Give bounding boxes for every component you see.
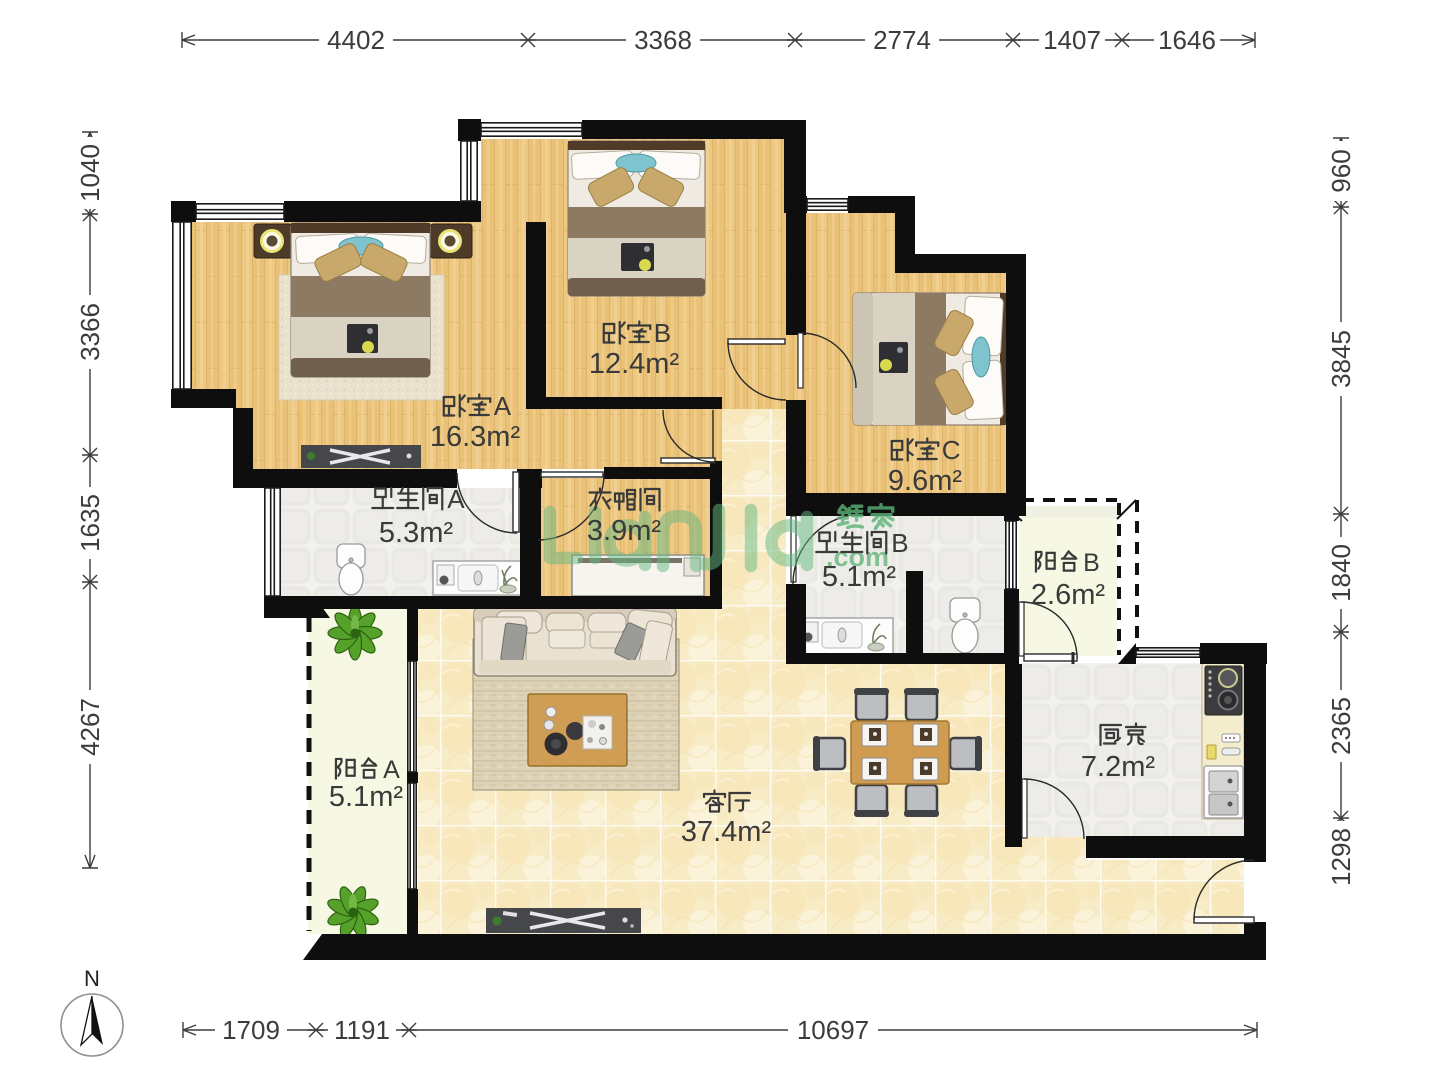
svg-text:5.1m²: 5.1m²: [329, 781, 403, 813]
svg-text:1840: 1840: [1326, 544, 1356, 602]
svg-text:3366: 3366: [75, 303, 105, 361]
svg-text:1298: 1298: [1326, 828, 1356, 886]
svg-text:B: B: [1083, 549, 1100, 577]
svg-text:N: N: [84, 966, 100, 991]
svg-text:A: A: [447, 484, 465, 514]
svg-text:5.3m²: 5.3m²: [379, 517, 453, 549]
svg-text:2774: 2774: [873, 25, 931, 55]
svg-text:A: A: [494, 391, 512, 421]
svg-text:9.6m²: 9.6m²: [888, 465, 962, 497]
svg-text:A: A: [383, 756, 400, 784]
svg-text:12.4m²: 12.4m²: [589, 348, 680, 380]
svg-text:1191: 1191: [334, 1015, 390, 1045]
svg-text:1646: 1646: [1158, 25, 1216, 55]
svg-text:10697: 10697: [797, 1015, 869, 1045]
svg-text:5.1m²: 5.1m²: [822, 561, 896, 593]
svg-text:2365: 2365: [1326, 697, 1356, 755]
svg-text:4402: 4402: [327, 25, 385, 55]
svg-text:1635: 1635: [75, 494, 105, 552]
svg-text:1407: 1407: [1043, 25, 1101, 55]
svg-text:B: B: [654, 318, 671, 348]
svg-text:37.4m²: 37.4m²: [681, 816, 772, 848]
svg-text:B: B: [891, 528, 908, 558]
svg-text:16.3m²: 16.3m²: [430, 421, 521, 453]
svg-text:2.6m²: 2.6m²: [1031, 579, 1105, 611]
svg-text:3.9m²: 3.9m²: [587, 515, 661, 547]
svg-text:4267: 4267: [75, 698, 105, 756]
svg-text:1040: 1040: [75, 144, 105, 202]
svg-text:7.2m²: 7.2m²: [1081, 751, 1155, 783]
svg-text:3368: 3368: [634, 25, 692, 55]
svg-text:C: C: [942, 435, 961, 465]
svg-text:1709: 1709: [222, 1015, 280, 1045]
svg-text:960: 960: [1326, 149, 1356, 192]
svg-text:3845: 3845: [1326, 330, 1356, 388]
